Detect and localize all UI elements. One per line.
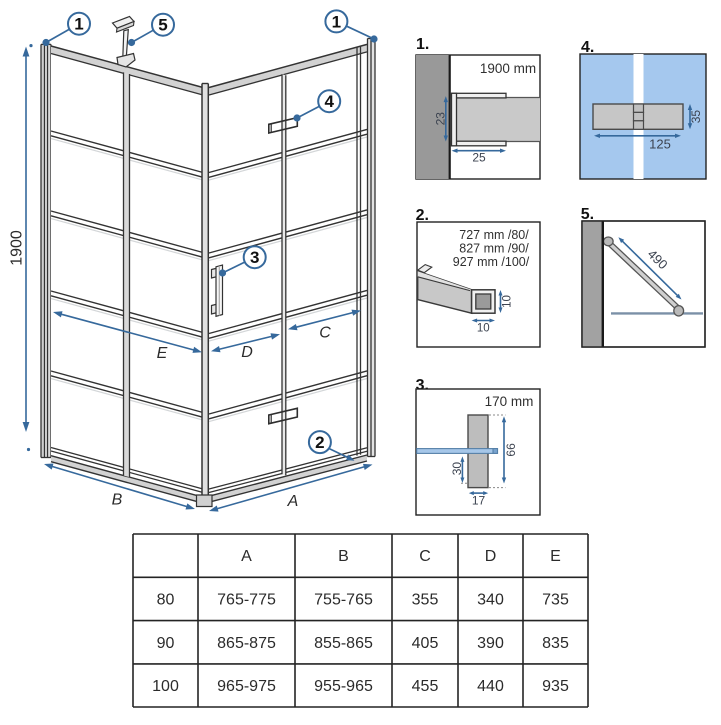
svg-text:100: 100 (152, 678, 179, 695)
svg-text:D: D (485, 548, 497, 565)
svg-text:C: C (319, 325, 331, 342)
svg-text:80: 80 (157, 591, 175, 608)
svg-text:3: 3 (250, 248, 259, 267)
svg-text:955-965: 955-965 (314, 678, 373, 695)
svg-text:835: 835 (542, 635, 569, 652)
svg-text:927 mm /100/: 927 mm /100/ (453, 255, 530, 269)
svg-text:2: 2 (315, 433, 324, 452)
svg-text:B: B (338, 548, 349, 565)
svg-text:765-775: 765-775 (217, 591, 276, 608)
svg-text:B: B (112, 492, 123, 509)
svg-text:10: 10 (502, 295, 514, 308)
svg-text:1.: 1. (416, 36, 429, 53)
svg-text:827 mm /90/: 827 mm /90/ (459, 242, 529, 256)
svg-text:5: 5 (158, 16, 167, 35)
svg-text:30: 30 (450, 462, 464, 476)
svg-text:A: A (287, 493, 299, 510)
svg-text:4: 4 (324, 92, 334, 111)
svg-text:865-875: 865-875 (217, 635, 276, 652)
svg-text:727 mm /80/: 727 mm /80/ (459, 228, 529, 242)
svg-text:735: 735 (542, 591, 569, 608)
svg-text:755-765: 755-765 (314, 591, 373, 608)
svg-text:170 mm: 170 mm (485, 394, 534, 409)
svg-text:E: E (550, 548, 561, 565)
svg-text:90: 90 (157, 635, 175, 652)
svg-text:66: 66 (504, 443, 518, 457)
svg-text:440: 440 (477, 678, 504, 695)
svg-text:C: C (419, 548, 431, 565)
svg-text:E: E (157, 345, 168, 362)
svg-text:25: 25 (472, 151, 486, 165)
svg-text:23: 23 (433, 112, 447, 126)
svg-text:D: D (241, 344, 253, 361)
svg-text:125: 125 (649, 137, 671, 152)
svg-text:35: 35 (689, 110, 703, 124)
svg-text:1: 1 (74, 15, 83, 34)
svg-text:10: 10 (477, 323, 490, 335)
svg-text:340: 340 (477, 591, 504, 608)
svg-text:17: 17 (472, 494, 486, 508)
svg-text:355: 355 (412, 591, 439, 608)
svg-text:455: 455 (412, 678, 439, 695)
svg-text:390: 390 (477, 635, 504, 652)
svg-text:1: 1 (332, 12, 341, 31)
svg-text:405: 405 (412, 635, 439, 652)
svg-text:935: 935 (542, 678, 569, 695)
svg-text:A: A (241, 548, 252, 565)
svg-text:965-975: 965-975 (217, 678, 276, 695)
svg-text:1900: 1900 (9, 230, 26, 266)
svg-text:1900 mm: 1900 mm (480, 61, 536, 76)
svg-text:855-865: 855-865 (314, 635, 373, 652)
